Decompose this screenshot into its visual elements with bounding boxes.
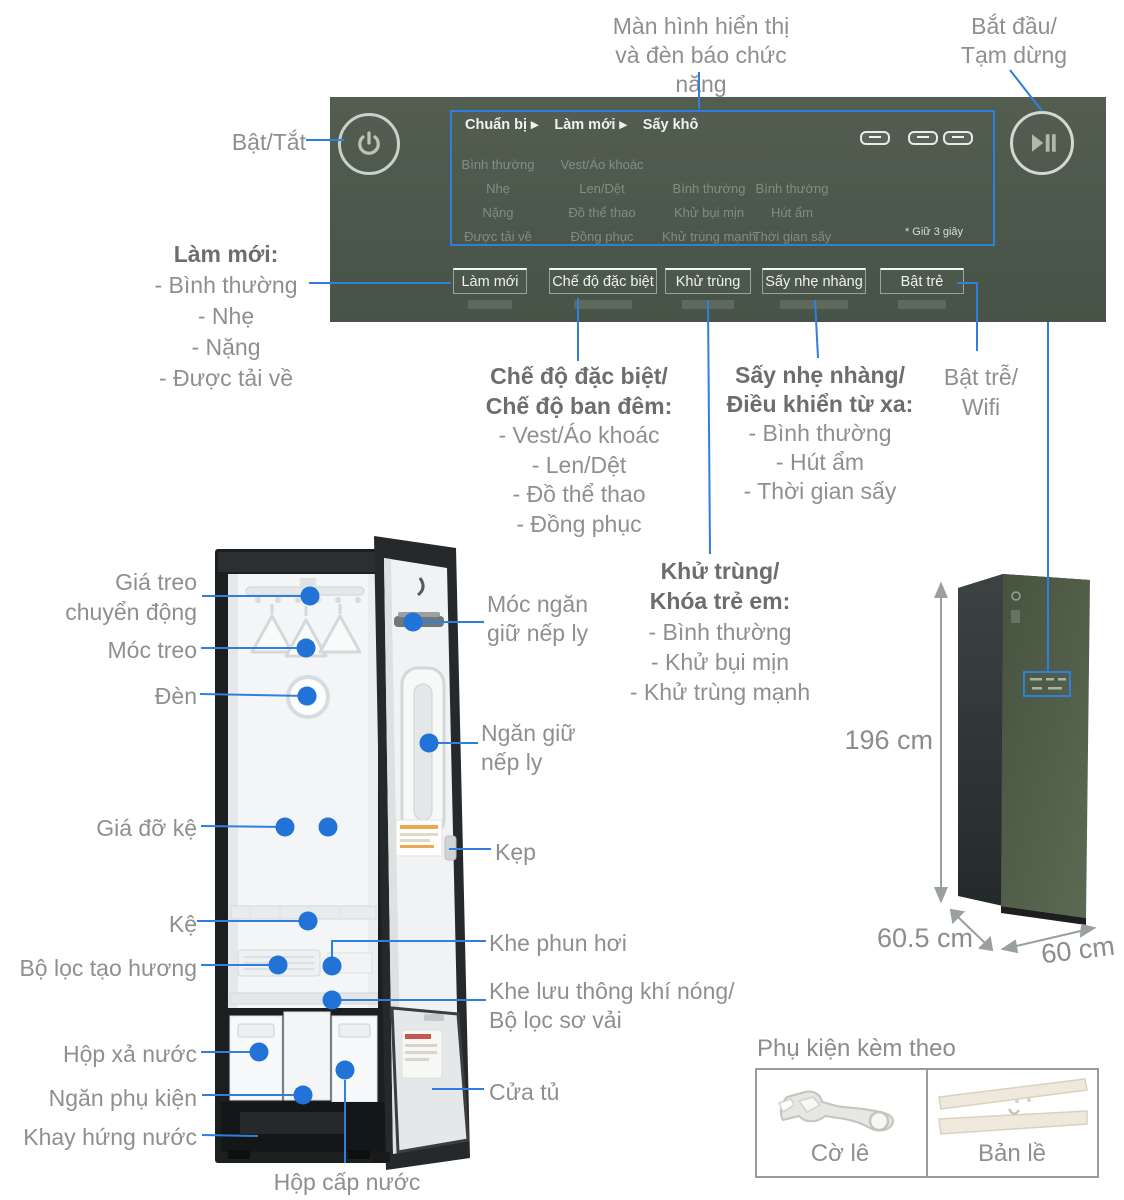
menu-prepare: Chuẩn bị ▸ [465,117,538,133]
start-pause-button[interactable] [1010,111,1074,175]
panel-button-sanitary[interactable]: Khử trùng [665,268,751,294]
callout-refresh-group: Làm mới: - Bình thường- Nhẹ - Nặng- Được… [116,239,336,394]
accessories-title: Phụ kiện kèm theo [757,1034,1057,1063]
panel-button-gentle-dry[interactable]: Sấy nhẹ nhàng [762,268,866,294]
label-wrench: Cờ lê [757,1139,923,1168]
button-sublabel [780,300,848,309]
panel-button-special-care[interactable]: Chế độ đặc biệt [549,268,657,294]
button-sublabel [468,300,512,309]
menu-refresh: Làm mới ▸ [554,117,626,133]
label-shelf: Kệ [7,910,197,939]
callout-start-pause-label: Bắt đầu/Tạm dừng [953,12,1075,70]
hold-3s-note: * Giữ 3 giây [884,226,984,238]
callout-gentle-group: Sấy nhẹ nhàng/Điều khiển từ xa: - Bình t… [710,361,930,506]
play-pause-icon [1027,128,1057,158]
label-steam-slot: Khe phun hơi [489,929,689,958]
power-icon [354,129,384,159]
display-menu: Chuẩn bị ▸ Làm mới ▸ Sấy khô [465,117,698,133]
dimension-width: 60 cm [1027,930,1124,971]
menu-dry: Sấy khô [643,117,699,133]
callout-delay-wifi-label: Bật trễ/Wifi [922,362,1040,422]
label-light: Đèn [7,682,197,711]
hinge-image [929,1074,1097,1146]
hinge-icon [933,1077,1093,1143]
button-sublabel [574,300,632,309]
infographic-canvas: Chuẩn bị ▸ Làm mới ▸ Sấy khô Bình thường… [0,0,1124,1200]
label-crease-keeper: Ngăn giữnếp ly [481,719,641,777]
lg-logo [1012,592,1020,600]
callout-display-label: Màn hình hiển thịvà đèn báo chức năng [590,12,812,99]
styler-interior-drawing [215,549,392,1163]
wrench-image [761,1074,921,1146]
mode-column-2: Vest/Áo khoácLen/Dệt Đồ thể thaoĐồng phụ… [545,153,659,249]
indicator-light [860,131,890,145]
styler-exterior-drawing [958,574,1090,925]
callout-special-group: Chế độ đặc biệt/Chế độ ban đêm: - Vest/Á… [468,362,690,539]
label-accessory-tray: Ngăn phụ kiện [7,1084,197,1113]
mode-column-1: Bình thườngNhẹ NặngĐược tải về [452,153,544,249]
display-area: Chuẩn bị ▸ Làm mới ▸ Sấy khô Bình thường… [450,110,995,246]
mode-column-4: Bình thườngHút ẩm Thời gian sấy [737,177,847,249]
label-shelf-support: Giá đỡ kệ [7,814,197,843]
label-crease-hook: Móc ngăngiữ nếp ly [487,590,647,648]
button-sublabel [682,300,734,309]
label-door: Cửa tủ [489,1078,609,1107]
dimension-depth: 60.5 cm [858,924,992,953]
callout-dots [250,587,439,1105]
dimension-arrows [936,584,1095,952]
panel-location-highlight [1024,672,1070,696]
panel-button-refresh[interactable]: Làm mới [453,268,527,294]
label-hanger: Móc treo [7,636,197,665]
label-water-tank: Hộp cấp nước [262,1168,432,1197]
styler-door-drawing [372,536,470,1170]
label-vent: Khe lưu thông khí nóng/Bộ lọc sơ vải [489,977,779,1035]
callout-power-label: Bật/Tắt [180,128,306,157]
label-moving-rack: Giá treochuyển động [7,567,197,627]
button-sublabel [898,300,946,309]
label-drip-tray: Khay hứng nước [7,1123,197,1152]
panel-button-delay[interactable]: Bật trẻ [880,268,964,294]
control-panel: Chuẩn bị ▸ Làm mới ▸ Sấy khô Bình thường… [330,97,1106,322]
indicator-light [943,131,973,145]
label-drain-tank: Hộp xả nước [7,1040,197,1069]
indicator-light [908,131,938,145]
power-button[interactable] [338,113,400,175]
dimension-height: 196 cm [795,726,933,755]
wrench-icon [775,1081,907,1139]
label-scent-filter: Bộ lọc tạo hương [7,954,197,983]
label-clip: Kẹp [495,838,595,867]
label-hinge: Bản lề [927,1139,1097,1168]
